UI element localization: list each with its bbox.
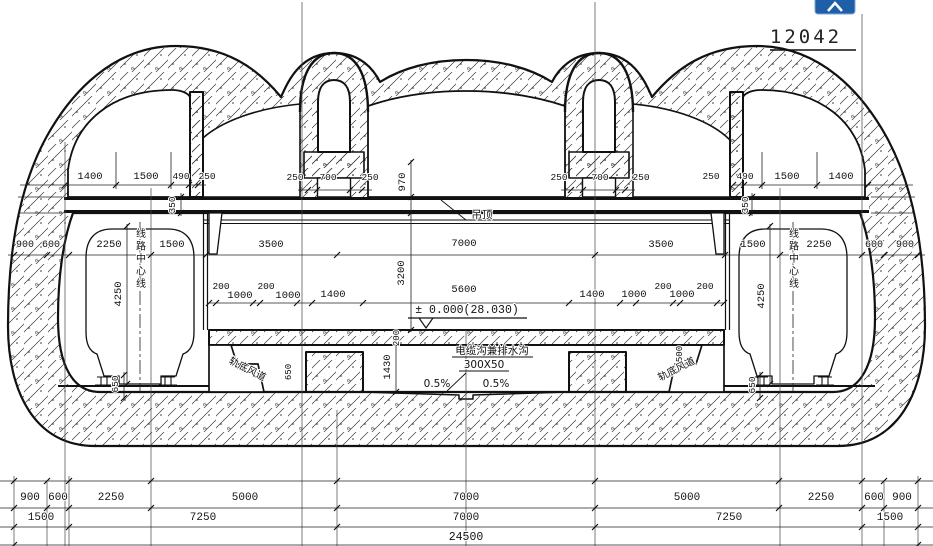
dim-text: 4250 (113, 281, 125, 306)
dim-text: 7000 (451, 238, 476, 250)
dim-text: 600 (865, 240, 883, 251)
dim-text: 200 (696, 281, 713, 292)
dim-text: 3200 (396, 260, 408, 285)
dim-text: 24500 (449, 531, 484, 544)
dim-text: 900 (892, 492, 912, 504)
cable-trench-size-label: 300X50 (464, 359, 505, 371)
dim-text: 250 (632, 172, 649, 183)
level-annotation: ± 0.000(28.030) (415, 304, 519, 317)
dim-text: 970 (397, 173, 409, 192)
dim-text: 200 (392, 330, 402, 346)
floor-block-left (306, 352, 363, 392)
cad-drawing-page: 1400150049025025070025025070025025049015… (0, 0, 933, 546)
dim-text: 700 (319, 172, 336, 183)
dim-text: 600 (42, 240, 60, 251)
app-icon-button[interactable] (815, 0, 855, 14)
drawing-number: 12042 (770, 26, 842, 48)
tunnel-cross-section-drawing: 1400150049025025070025025070025025049015… (0, 0, 933, 546)
dim-text: 1400 (579, 289, 604, 301)
dim-text: 350 (740, 196, 751, 213)
dim-text: 1400 (77, 171, 102, 183)
dim-text: 700 (591, 172, 608, 183)
dim-text: 7250 (190, 512, 216, 524)
track-centerline-label-right: 线路中心线 (789, 227, 799, 290)
dim-text: 1000 (227, 290, 252, 302)
dim-text: 350 (167, 196, 178, 213)
dim-text: 650 (284, 364, 294, 380)
dim-text: 900 (896, 240, 914, 251)
dim-text: 2250 (808, 492, 834, 504)
dim-text: 5600 (451, 284, 476, 296)
dim-text: 600 (48, 492, 68, 504)
dim-text: 250 (286, 172, 303, 183)
dim-text: 1500 (877, 512, 903, 524)
dim-text: 7000 (453, 512, 479, 524)
dim-text: 250 (550, 172, 567, 183)
dim-text: 2250 (98, 492, 124, 504)
dim-text: 1400 (320, 289, 345, 301)
dim-text: 1500 (774, 171, 799, 183)
dim-text: 1000 (275, 290, 300, 302)
dim-text: 490 (172, 171, 189, 182)
dim-text: 1000 (669, 289, 694, 301)
dim-text: 7000 (453, 492, 479, 504)
dim-text: 1430 (382, 354, 394, 379)
dim-text: 3500 (648, 239, 673, 251)
dim-text: 2250 (96, 239, 121, 251)
floor-block-right (569, 352, 626, 392)
dim-text: 5000 (232, 492, 258, 504)
dim-text: 1400 (828, 171, 853, 183)
dim-text: 1500 (28, 512, 54, 524)
dim-text: 1500 (159, 239, 184, 251)
dim-text: 1500 (133, 171, 158, 183)
dim-text: 1000 (621, 289, 646, 301)
dim-text: 1500 (740, 239, 765, 251)
floor-slab (209, 330, 724, 345)
dim-text: 490 (736, 171, 753, 182)
dim-text: 650 (747, 376, 758, 393)
slope-label-left: 0.5% (424, 378, 451, 390)
dim-text: 900 (20, 492, 40, 504)
dim-text: 600 (864, 492, 884, 504)
ceiling-label: 吊顶 (472, 209, 493, 221)
slope-label-right: 0.5% (483, 378, 510, 390)
dim-text: 900 (16, 240, 34, 251)
dim-text: 7250 (716, 512, 742, 524)
dim-text: 5000 (674, 492, 700, 504)
dim-text: 2250 (806, 239, 831, 251)
dim-text: 250 (198, 171, 215, 182)
dim-text: 250 (361, 172, 378, 183)
dim-text: 3500 (258, 239, 283, 251)
dim-text: 4250 (756, 283, 768, 308)
dim-text: 650 (110, 375, 121, 392)
cable-trench-label: 电缆沟兼排水沟 (455, 344, 529, 357)
dim-text: 250 (702, 171, 719, 182)
track-centerline-label-left: 线路中心线 (136, 227, 146, 290)
dim-text: 200 (257, 281, 274, 292)
